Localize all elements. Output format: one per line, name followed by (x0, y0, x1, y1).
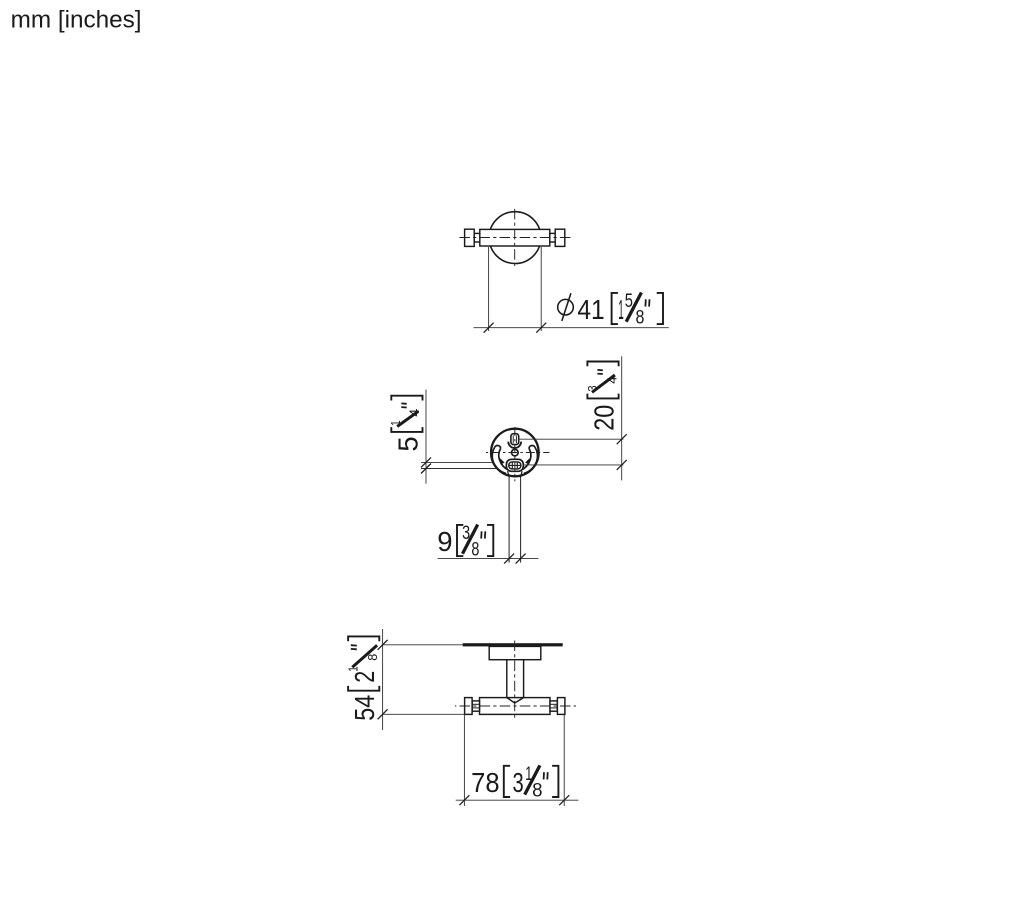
svg-text:78: 78 (471, 767, 499, 798)
svg-text:54: 54 (349, 695, 380, 721)
svg-text:1: 1 (618, 294, 624, 325)
svg-text:8: 8 (471, 540, 479, 561)
svg-text:4: 4 (604, 376, 619, 383)
svg-text:3: 3 (512, 767, 523, 798)
svg-text:5: 5 (392, 436, 423, 451)
svg-text:4: 4 (406, 408, 422, 416)
svg-text:8: 8 (366, 654, 380, 661)
svg-text:8: 8 (532, 780, 542, 801)
svg-text:9: 9 (437, 526, 452, 557)
svg-text:8: 8 (636, 308, 645, 329)
svg-text:mm [inches]: mm [inches] (11, 6, 142, 33)
svg-text:41: 41 (577, 294, 604, 325)
svg-text:20: 20 (588, 405, 619, 431)
